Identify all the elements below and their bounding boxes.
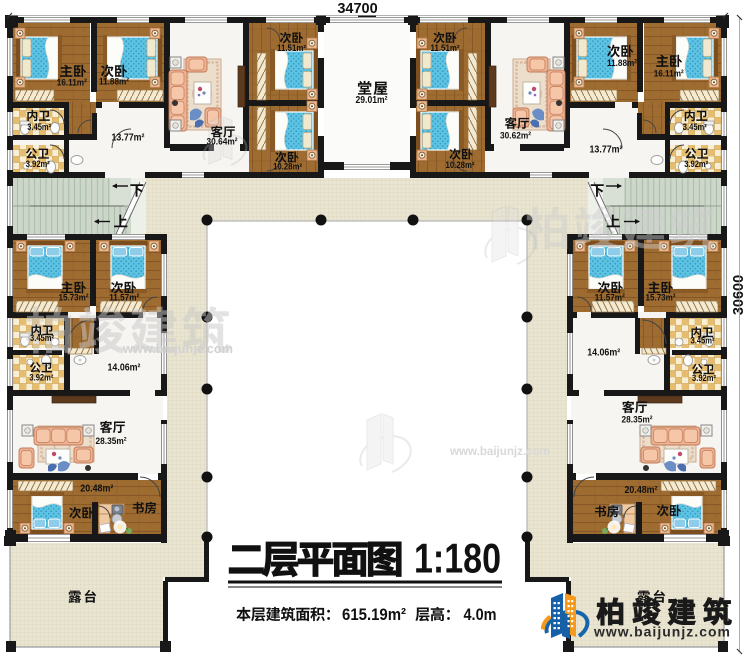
svg-text:4.0m: 4.0m — [464, 606, 497, 624]
svg-text:16.11m²: 16.11m² — [654, 69, 684, 80]
svg-text:16.11m²: 16.11m² — [57, 78, 87, 89]
svg-text:30.64m²: 30.64m² — [207, 137, 238, 148]
svg-text:10.28m²: 10.28m² — [273, 162, 302, 172]
svg-text:3.45m²: 3.45m² — [691, 336, 715, 346]
svg-text:11.57m²: 11.57m² — [595, 293, 625, 304]
svg-text:11.51m²: 11.51m² — [431, 43, 460, 53]
svg-text:www.baijunjz.com: www.baijunjz.com — [449, 444, 550, 458]
svg-text:3.45m²: 3.45m² — [30, 333, 54, 343]
svg-text:34700: 34700 — [337, 1, 377, 17]
svg-text:28.35m²: 28.35m² — [622, 415, 653, 426]
svg-text:3.92m²: 3.92m² — [684, 159, 708, 169]
svg-text:14.06m²: 14.06m² — [587, 348, 621, 359]
svg-text:1:180: 1:180 — [414, 535, 501, 582]
svg-text:14.06m²: 14.06m² — [108, 363, 142, 374]
svg-text:3.92m²: 3.92m² — [692, 373, 716, 383]
svg-text:11.51m²: 11.51m² — [277, 43, 306, 53]
svg-text:615.19m²: 615.19m² — [342, 606, 406, 624]
svg-text:30.62m²: 30.62m² — [500, 131, 531, 142]
svg-text:3.45m²: 3.45m² — [683, 122, 707, 132]
svg-text:13.77m²: 13.77m² — [112, 133, 146, 144]
svg-text:www.baijunjz.com: www.baijunjz.com — [122, 341, 233, 356]
svg-text:3.92m²: 3.92m² — [26, 159, 50, 169]
svg-text:15.73m²: 15.73m² — [646, 293, 676, 304]
svg-text:20.48m²: 20.48m² — [625, 485, 659, 496]
svg-text:11.88m²: 11.88m² — [99, 77, 129, 88]
svg-text:15.73m²: 15.73m² — [59, 293, 89, 304]
svg-text:11.88m²: 11.88m² — [607, 58, 637, 69]
svg-text:3.45m²: 3.45m² — [27, 122, 51, 132]
svg-text:11.57m²: 11.57m² — [109, 293, 139, 304]
svg-text:www.baijunjz.com: www.baijunjz.com — [593, 625, 731, 640]
svg-text:20.48m²: 20.48m² — [80, 484, 114, 495]
svg-text:13.77m²: 13.77m² — [590, 145, 624, 156]
svg-text:10.28m²: 10.28m² — [446, 160, 475, 170]
svg-text:3.92m²: 3.92m² — [29, 373, 53, 383]
svg-text:30600: 30600 — [731, 275, 747, 315]
svg-text:28.35m²: 28.35m² — [96, 436, 127, 447]
svg-text:29.01m²: 29.01m² — [356, 95, 389, 106]
